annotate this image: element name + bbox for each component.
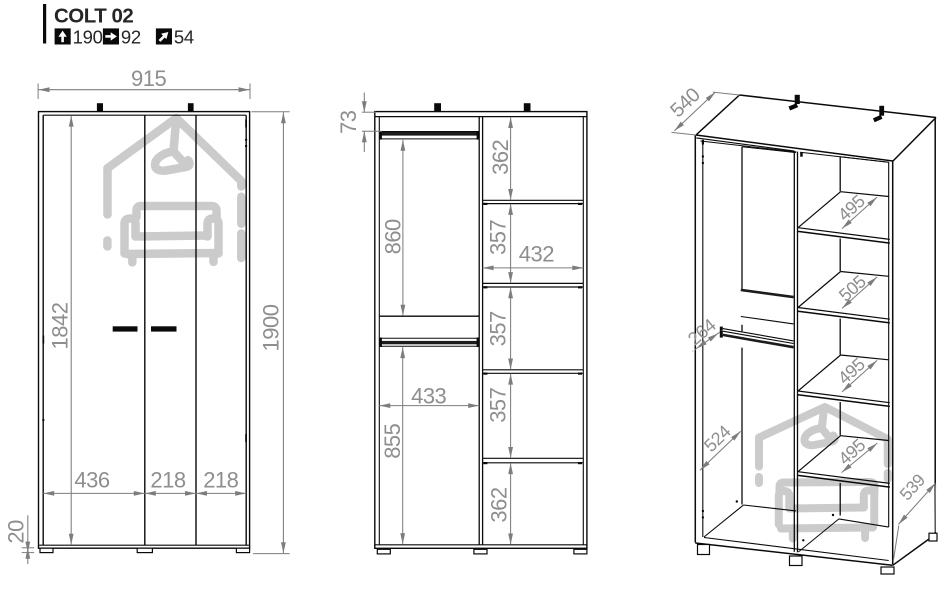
svg-text:218: 218	[203, 468, 238, 493]
svg-text:433: 433	[411, 383, 446, 408]
svg-text:1900: 1900	[259, 304, 284, 351]
svg-text:357: 357	[486, 387, 511, 422]
svg-text:436: 436	[74, 468, 109, 493]
svg-text:357: 357	[486, 311, 511, 346]
svg-text:COLT 02: COLT 02	[54, 5, 133, 28]
svg-text:432: 432	[519, 242, 554, 267]
svg-text:855: 855	[380, 423, 405, 458]
svg-text:92: 92	[121, 26, 141, 47]
svg-text:190: 190	[73, 26, 103, 47]
svg-text:362: 362	[487, 487, 512, 522]
svg-text:860: 860	[381, 219, 406, 254]
svg-text:73: 73	[336, 110, 361, 134]
svg-text:54: 54	[174, 26, 194, 47]
svg-text:20: 20	[4, 520, 29, 544]
svg-text:1842: 1842	[48, 302, 73, 349]
svg-text:362: 362	[488, 139, 513, 174]
svg-text:218: 218	[150, 468, 185, 493]
svg-text:357: 357	[486, 220, 511, 255]
svg-text:915: 915	[131, 66, 166, 91]
